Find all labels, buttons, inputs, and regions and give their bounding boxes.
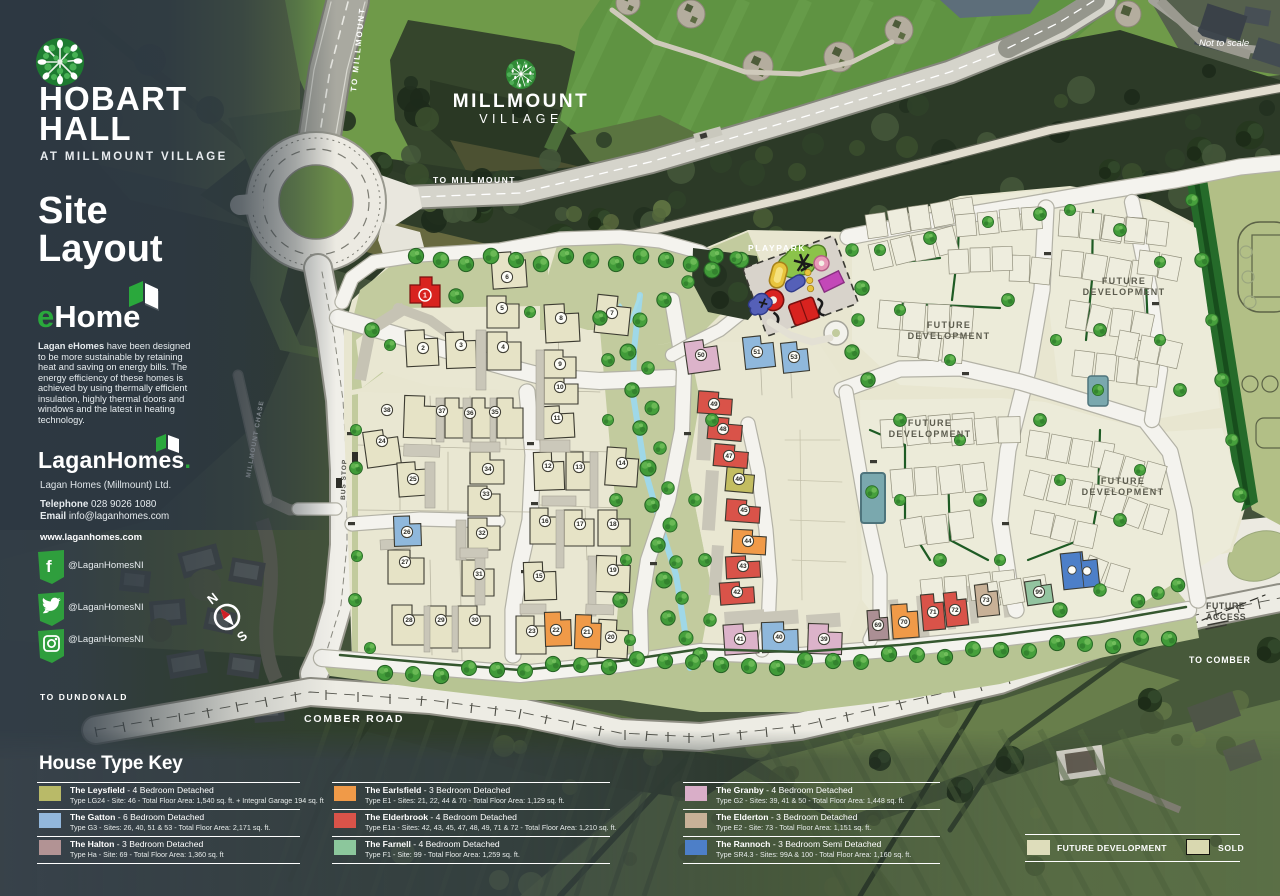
svg-text:TO MILLMOUNT: TO MILLMOUNT (433, 175, 516, 185)
svg-text:47: 47 (725, 453, 733, 460)
svg-text:MILLMOUNT: MILLMOUNT (453, 91, 589, 112)
svg-text:72: 72 (951, 607, 959, 614)
svg-text:31: 31 (475, 571, 483, 578)
svg-text:46: 46 (735, 476, 743, 483)
svg-text:9: 9 (558, 361, 562, 368)
svg-text:27: 27 (401, 559, 409, 566)
svg-text:3: 3 (459, 342, 463, 349)
svg-text:13: 13 (575, 464, 583, 471)
svg-text:12: 12 (544, 463, 552, 470)
svg-text:19: 19 (609, 567, 617, 574)
svg-text:49: 49 (710, 401, 718, 408)
svg-text:39: 39 (820, 636, 828, 643)
svg-text:35: 35 (491, 409, 499, 416)
svg-text:33: 33 (482, 491, 490, 498)
svg-text:DEVELOPMENT: DEVELOPMENT (889, 429, 972, 439)
svg-text:48: 48 (719, 426, 727, 433)
svg-text:28: 28 (405, 617, 413, 624)
svg-text:26: 26 (403, 529, 411, 536)
svg-text:20: 20 (607, 634, 615, 641)
svg-text:23: 23 (528, 628, 536, 635)
svg-text:41: 41 (736, 636, 744, 643)
svg-text:6: 6 (505, 274, 509, 281)
svg-text:25: 25 (409, 476, 417, 483)
svg-text:70: 70 (900, 619, 908, 626)
svg-text:14: 14 (618, 460, 626, 467)
svg-text:FUTURE: FUTURE (908, 418, 952, 428)
svg-text:71: 71 (929, 609, 937, 616)
svg-text:FUTURE: FUTURE (927, 320, 971, 330)
svg-text:4: 4 (501, 344, 505, 351)
svg-text:5: 5 (500, 305, 504, 312)
svg-text:22: 22 (552, 627, 560, 634)
svg-text:45: 45 (740, 507, 748, 514)
svg-text:DEVELOPMENT: DEVELOPMENT (1082, 487, 1165, 497)
svg-text:f: f (46, 557, 52, 576)
svg-text:8: 8 (559, 315, 563, 322)
svg-text:21: 21 (583, 629, 591, 636)
svg-text:30: 30 (471, 617, 479, 624)
svg-text:50: 50 (697, 352, 705, 359)
svg-text:99: 99 (1035, 589, 1043, 596)
svg-text:43: 43 (739, 563, 747, 570)
svg-text:10: 10 (556, 384, 564, 391)
svg-text:15: 15 (535, 573, 543, 580)
svg-text:40: 40 (775, 634, 783, 641)
svg-text:51: 51 (753, 349, 761, 356)
svg-text:2: 2 (421, 345, 425, 352)
svg-text:PLAYPARK: PLAYPARK (748, 243, 806, 253)
svg-text:42: 42 (733, 589, 741, 596)
svg-text:DEVELOPMENT: DEVELOPMENT (908, 331, 991, 341)
svg-text:38: 38 (383, 407, 391, 414)
svg-text:Not to scale: Not to scale (1199, 38, 1249, 49)
svg-text:32: 32 (478, 530, 486, 537)
svg-text:FUTURE: FUTURE (1101, 476, 1145, 486)
svg-text:11: 11 (554, 415, 561, 422)
svg-text:36: 36 (466, 410, 474, 417)
svg-text:FUTURE: FUTURE (1206, 601, 1245, 611)
svg-text:53: 53 (790, 354, 798, 361)
svg-text:DEVELOPMENT: DEVELOPMENT (1083, 287, 1166, 297)
svg-text:29: 29 (437, 617, 445, 624)
svg-text:7: 7 (610, 310, 614, 317)
svg-text:ACCESS: ACCESS (1206, 612, 1246, 622)
svg-text:BUS STOP: BUS STOP (340, 459, 348, 500)
svg-text:VILLAGE: VILLAGE (479, 112, 563, 126)
svg-text:1: 1 (423, 293, 427, 300)
svg-text:73: 73 (982, 597, 990, 604)
svg-text:N: N (204, 590, 221, 608)
svg-text:TO COMBER: TO COMBER (1189, 655, 1251, 665)
svg-text:69: 69 (874, 622, 882, 629)
svg-text:S: S (234, 628, 250, 645)
svg-text:24: 24 (378, 438, 386, 445)
svg-text:FUTURE: FUTURE (1102, 276, 1146, 286)
svg-text:37: 37 (438, 408, 446, 415)
svg-text:34: 34 (484, 466, 492, 473)
svg-text:16: 16 (541, 518, 549, 525)
svg-text:17: 17 (576, 521, 584, 528)
svg-text:18: 18 (609, 521, 617, 528)
svg-text:44: 44 (744, 538, 752, 545)
